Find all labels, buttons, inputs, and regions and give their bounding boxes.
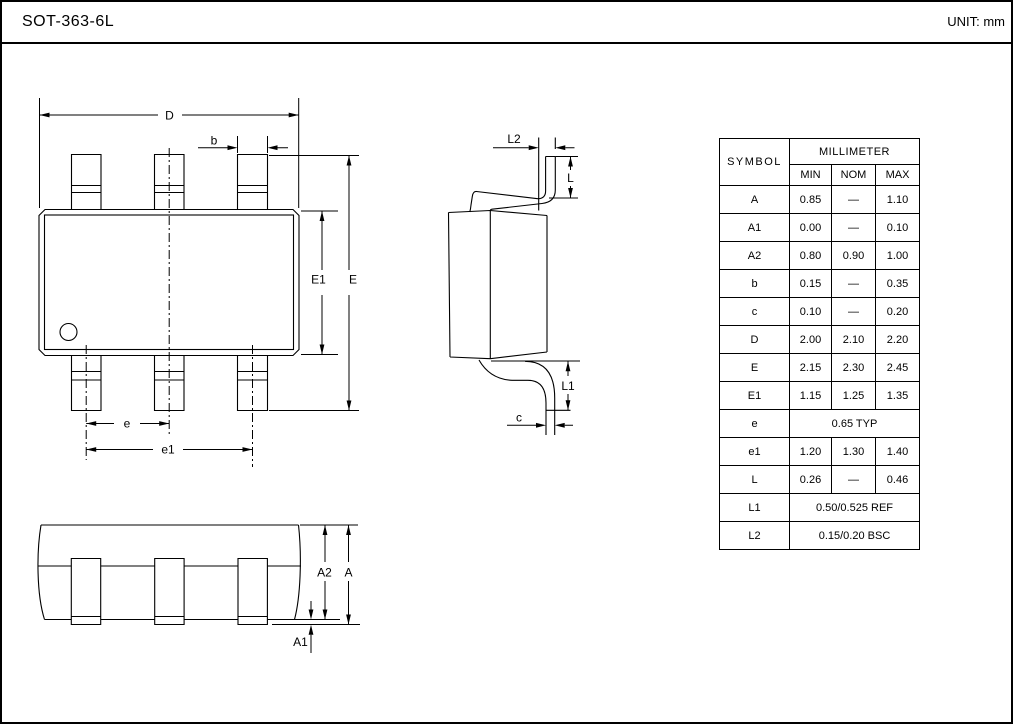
- min-cell: 1.15: [790, 382, 832, 410]
- min-cell: 0.85: [790, 186, 832, 214]
- dim-A2: A2: [317, 525, 332, 620]
- dim-label-A1: A1: [293, 635, 308, 649]
- dim-L: L: [549, 157, 578, 199]
- table-row: L1 0.50/0.525 REF: [720, 494, 920, 522]
- dim-label-E1: E1: [311, 273, 326, 287]
- nom-header: NOM: [832, 165, 876, 186]
- max-cell: 0.20: [876, 298, 920, 326]
- nom-cell: —: [832, 186, 876, 214]
- max-cell: 1.00: [876, 242, 920, 270]
- dim-e: e: [86, 417, 169, 431]
- symbol-header: SYMBOL: [720, 139, 790, 186]
- table-row: D 2.00 2.10 2.20: [720, 326, 920, 354]
- front-body: [38, 525, 300, 620]
- max-cell: 0.35: [876, 270, 920, 298]
- table-row: b 0.15 — 0.35: [720, 270, 920, 298]
- table-row: A2 0.80 0.90 1.00: [720, 242, 920, 270]
- min-header: MIN: [790, 165, 832, 186]
- symbol-cell: c: [720, 298, 790, 326]
- table-row: e 0.65 TYP: [720, 410, 920, 438]
- symbol-cell: A1: [720, 214, 790, 242]
- front-lead: [238, 559, 267, 625]
- max-cell: 1.35: [876, 382, 920, 410]
- lead: [238, 155, 268, 210]
- nom-cell: 1.30: [832, 438, 876, 466]
- side-body: [449, 211, 548, 359]
- symbol-cell: e1: [720, 438, 790, 466]
- min-cell: 1.20: [790, 438, 832, 466]
- nom-cell: —: [832, 466, 876, 494]
- table-row: e1 1.20 1.30 1.40: [720, 438, 920, 466]
- upper-lead: [470, 138, 556, 213]
- pin1-indicator: [60, 324, 77, 341]
- side-view: L2 L L1 c: [449, 132, 581, 435]
- min-cell: 0.00: [790, 214, 832, 242]
- symbol-cell: D: [720, 326, 790, 354]
- min-cell: 2.00: [790, 326, 832, 354]
- table-row: L2 0.15/0.20 BSC: [720, 522, 920, 550]
- dim-label-b: b: [211, 134, 218, 148]
- span-cell: 0.15/0.20 BSC: [790, 522, 920, 550]
- front-view: A2 A A1: [38, 525, 361, 653]
- symbol-cell: e: [720, 410, 790, 438]
- dim-label-c: c: [516, 411, 522, 425]
- front-lead: [155, 559, 184, 625]
- symbol-cell: b: [720, 270, 790, 298]
- min-cell: 0.10: [790, 298, 832, 326]
- max-header: MAX: [876, 165, 920, 186]
- dim-label-L2: L2: [507, 132, 521, 146]
- top-view: D b E E1: [39, 98, 359, 467]
- symbol-cell: E1: [720, 382, 790, 410]
- min-cell: 2.15: [790, 354, 832, 382]
- dim-e1: e1: [86, 443, 252, 457]
- table-row: E 2.15 2.30 2.45: [720, 354, 920, 382]
- nom-cell: 2.10: [832, 326, 876, 354]
- lead-line: [238, 186, 268, 193]
- datasheet-page: SOT-363-6L UNIT: mm: [0, 0, 1013, 724]
- lower-lead: [479, 360, 580, 435]
- max-cell: 1.10: [876, 186, 920, 214]
- max-cell: 1.40: [876, 438, 920, 466]
- table-row: E1 1.15 1.25 1.35: [720, 382, 920, 410]
- symbol-cell: L: [720, 466, 790, 494]
- max-cell: 0.10: [876, 214, 920, 242]
- dim-label-e: e: [124, 417, 131, 431]
- dim-label-A: A: [344, 566, 352, 580]
- dim-label-e1: e1: [161, 443, 175, 457]
- dim-L2: L2: [493, 132, 575, 150]
- max-cell: 2.45: [876, 354, 920, 382]
- dimension-table: SYMBOL MILLIMETER MIN NOM MAX A 0.85 — 1…: [719, 138, 920, 550]
- table-row: A1 0.00 — 0.10: [720, 214, 920, 242]
- nom-cell: —: [832, 298, 876, 326]
- nom-cell: —: [832, 214, 876, 242]
- dim-label-E: E: [349, 273, 357, 287]
- dim-A1: A1: [293, 601, 313, 653]
- span-cell: 0.65 TYP: [790, 410, 920, 438]
- symbol-cell: L2: [720, 522, 790, 550]
- min-cell: 0.15: [790, 270, 832, 298]
- table-row: c 0.10 — 0.20: [720, 298, 920, 326]
- min-cell: 0.26: [790, 466, 832, 494]
- lead: [72, 155, 102, 210]
- dim-label-L: L: [567, 171, 574, 185]
- lead-line: [72, 186, 102, 193]
- table-row: L 0.26 — 0.46: [720, 466, 920, 494]
- max-cell: 2.20: [876, 326, 920, 354]
- front-lead: [71, 559, 100, 625]
- dim-b: b: [198, 134, 288, 154]
- dim-c: c: [507, 411, 573, 428]
- min-cell: 0.80: [790, 242, 832, 270]
- dim-label-A2: A2: [317, 566, 332, 580]
- nom-cell: —: [832, 270, 876, 298]
- symbol-cell: A2: [720, 242, 790, 270]
- symbol-cell: L1: [720, 494, 790, 522]
- nom-cell: 2.30: [832, 354, 876, 382]
- body-outline: [39, 210, 299, 356]
- symbol-cell: A: [720, 186, 790, 214]
- table-row: A 0.85 — 1.10: [720, 186, 920, 214]
- dim-label-L1: L1: [561, 379, 575, 393]
- dim-E1: E1: [301, 211, 338, 355]
- nom-cell: 1.25: [832, 382, 876, 410]
- dim-label-D: D: [165, 109, 174, 123]
- nom-cell: 0.90: [832, 242, 876, 270]
- dim-A: A: [344, 525, 352, 625]
- span-cell: 0.50/0.525 REF: [790, 494, 920, 522]
- max-cell: 0.46: [876, 466, 920, 494]
- symbol-cell: E: [720, 354, 790, 382]
- millimeter-header: MILLIMETER: [790, 139, 920, 165]
- dim-L1: L1: [561, 361, 575, 410]
